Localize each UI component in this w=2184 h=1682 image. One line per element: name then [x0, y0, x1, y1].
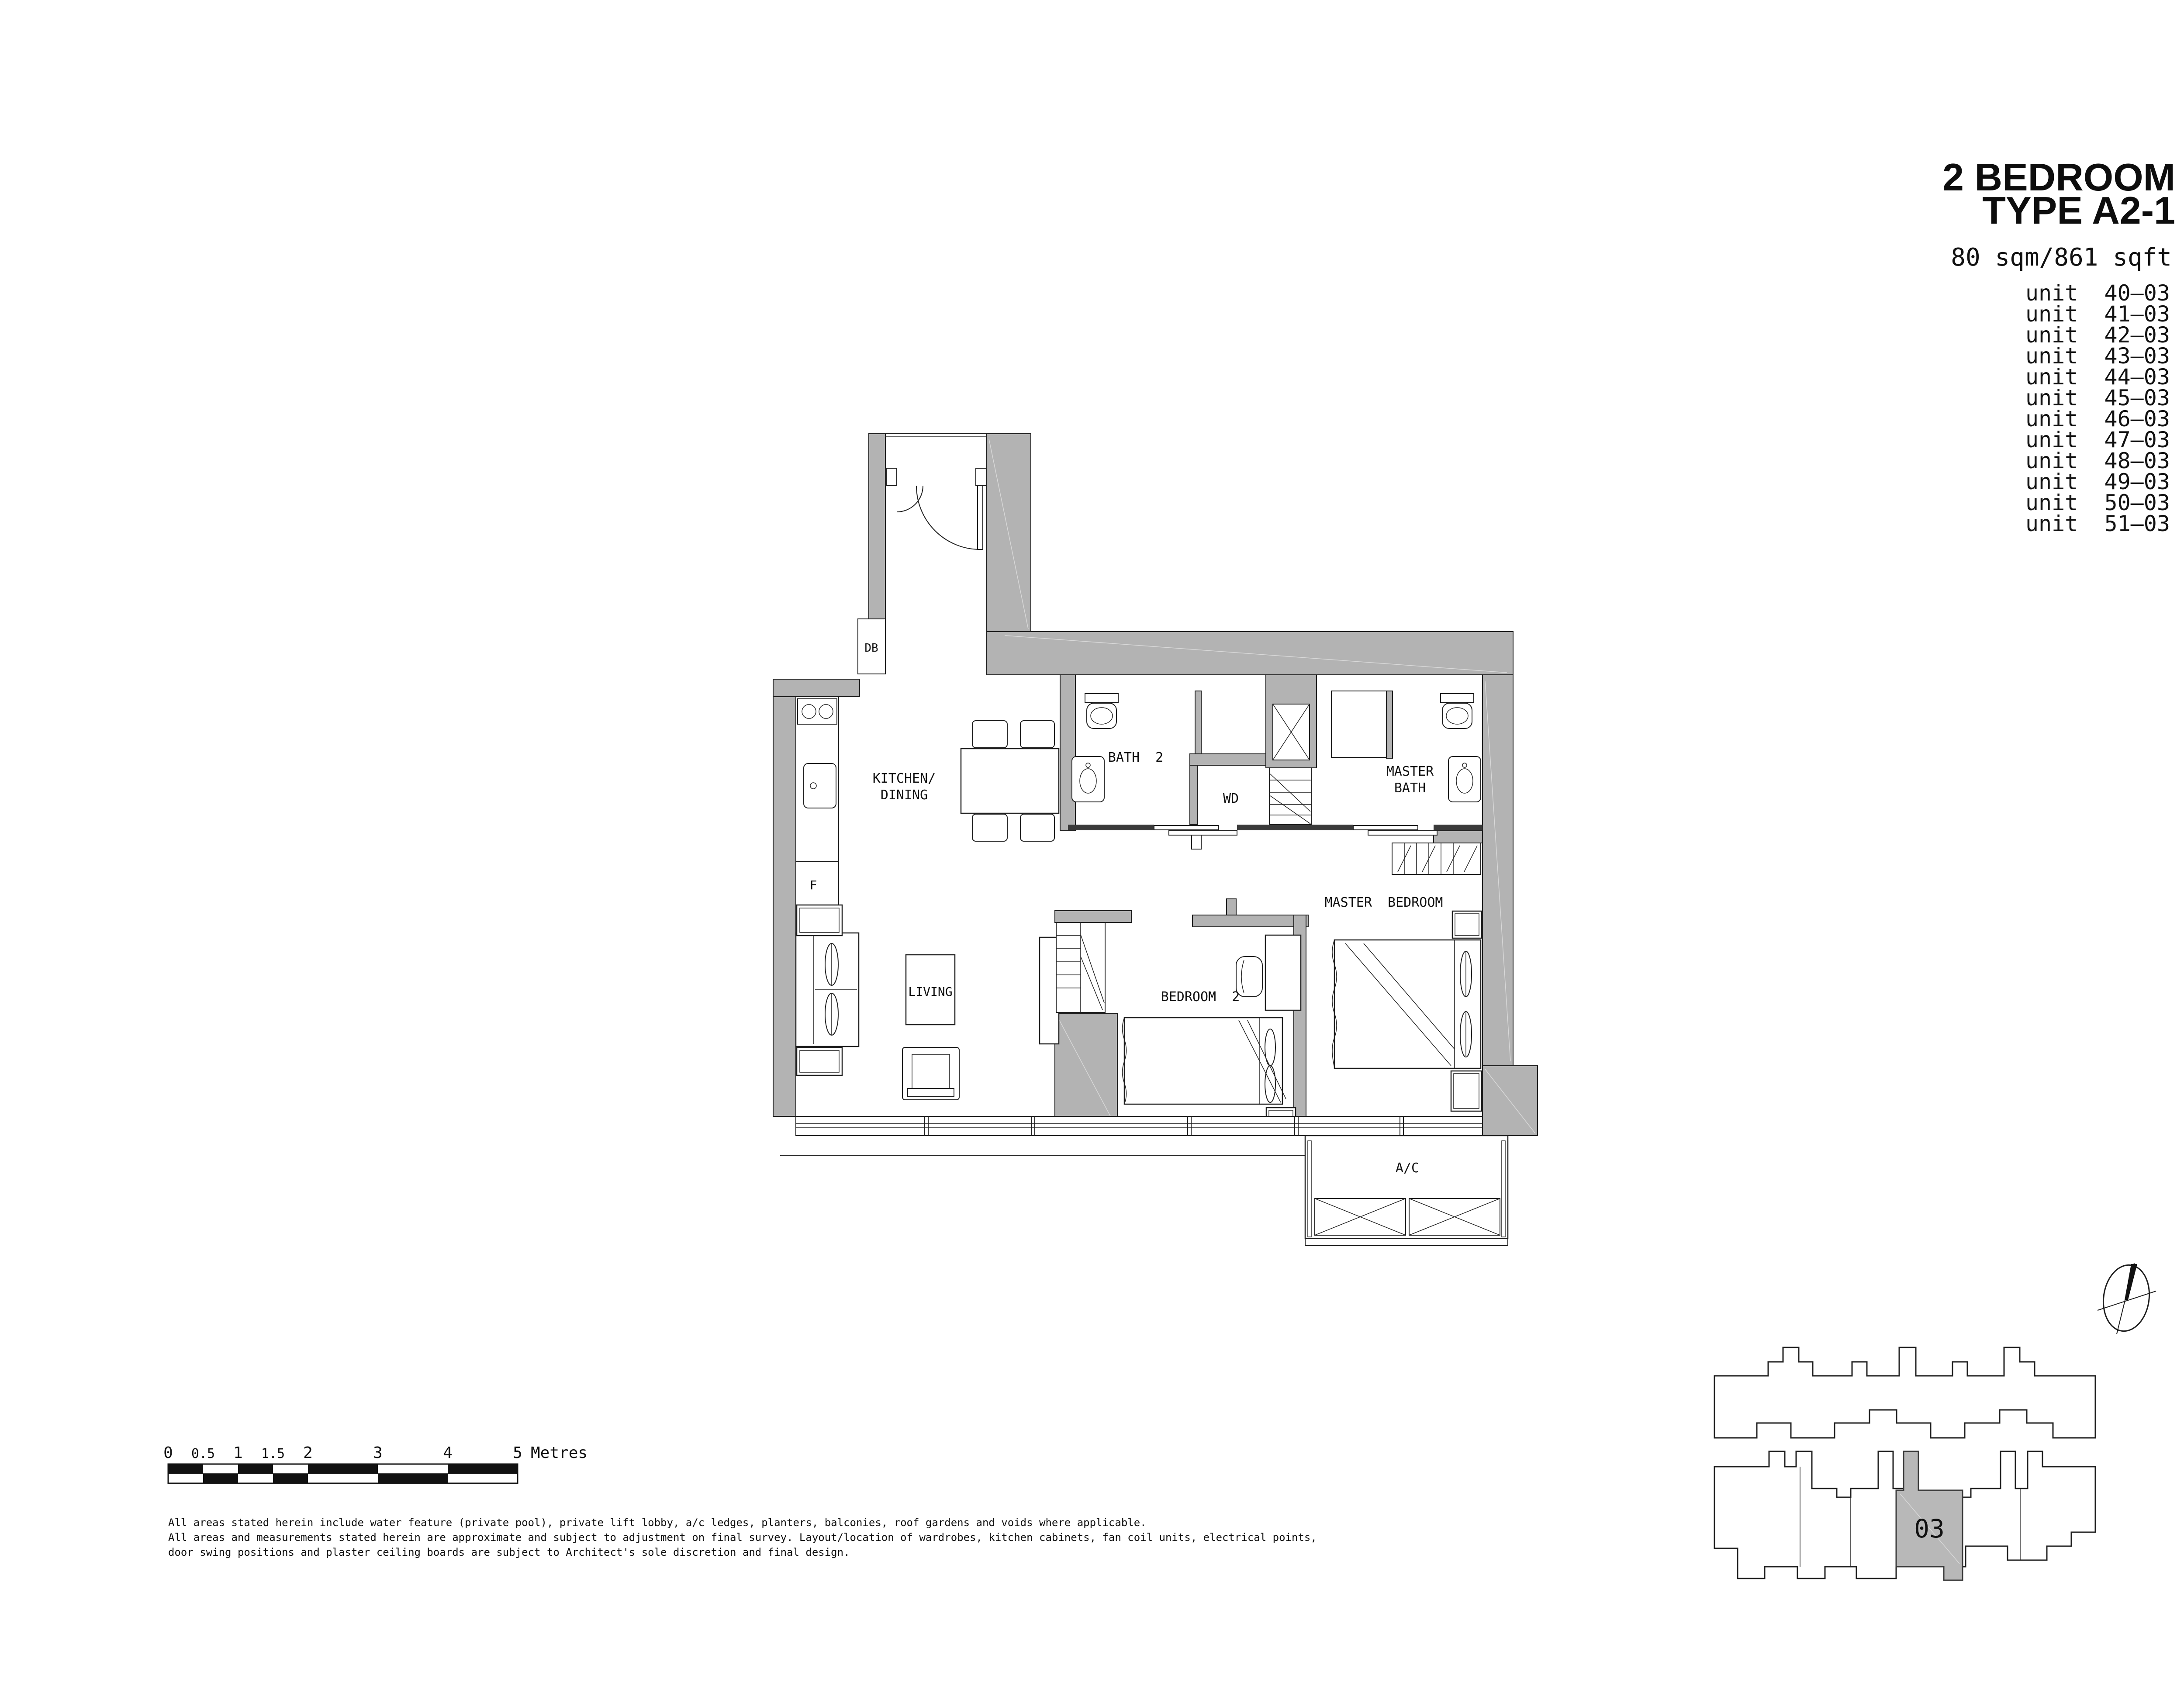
- kitchen-label-line2: DINING: [881, 787, 928, 803]
- scale-tick: 1: [233, 1444, 243, 1462]
- dining-chair: [1020, 814, 1054, 841]
- bath2-sliding-door-leaf: [1169, 831, 1237, 835]
- scale-bar-graphic: [168, 1464, 518, 1483]
- master-bath-label-line2: BATH: [1394, 781, 1426, 796]
- wall-kitchen-top: [773, 679, 860, 697]
- wall-masterbath-south: [1434, 825, 1482, 830]
- floorplan-canvas: DB F KITCHEN/ DINING: [0, 0, 2184, 1682]
- bath2-door-stop: [1192, 835, 1201, 849]
- master-sliding-door-leaf: [1368, 831, 1437, 835]
- title-block: 2 BEDROOM TYPE A2-1 80 sqm/861 sqft unit…: [1942, 155, 2175, 536]
- kitchen-sink: [804, 763, 836, 808]
- floorplan-page: DB F KITCHEN/ DINING: [0, 0, 2184, 1682]
- single-bed: [1124, 1018, 1282, 1104]
- fridge: [796, 861, 839, 905]
- ac-bottom-strip: [1305, 1239, 1508, 1246]
- scale-unit-label: Metres: [531, 1444, 587, 1462]
- disclaimer-line3: door swing positions and plaster ceiling…: [168, 1546, 850, 1558]
- area-label: 80 sqm/861 sqft: [1951, 243, 2172, 272]
- scale-bar: 0 0.5 1 1.5 2 3 4 5 Metres: [163, 1444, 587, 1483]
- disclaimer-line1: All areas stated herein include water fe…: [168, 1516, 1147, 1529]
- bath2-label: BATH 2: [1108, 750, 1163, 765]
- scale-tick: 0: [163, 1444, 173, 1462]
- scale-tick: 0.5: [191, 1446, 215, 1461]
- master-bath: MASTER BATH: [1331, 691, 1481, 802]
- db-label: DB: [864, 642, 878, 655]
- wall-bath2-south-a: [1068, 825, 1154, 830]
- side-table: [797, 1047, 842, 1075]
- north-needle: [2125, 1264, 2137, 1300]
- entry-door-swing-arc-small: [897, 486, 923, 512]
- key-plan: 03: [1714, 1262, 2156, 1580]
- disclaimer-line2: All areas and measurements stated herein…: [168, 1531, 1317, 1544]
- key-plan-upper-wing: [1714, 1347, 2095, 1438]
- master-bedroom-label: MASTER BEDROOM: [1325, 895, 1443, 910]
- toilet-bowl: [1087, 703, 1116, 729]
- desk: [1265, 935, 1301, 1010]
- master-wardrobe: [1392, 843, 1481, 874]
- hob: [798, 699, 837, 724]
- wall-masterbath-shower-partition: [1386, 691, 1393, 758]
- wall-bath-south-b: [1237, 825, 1353, 830]
- wall-left: [773, 679, 796, 1116]
- scale-tick: 3: [373, 1444, 383, 1462]
- wd-label: WD: [1223, 791, 1239, 806]
- wall-wd-top: [1190, 754, 1267, 765]
- toilet-tank: [1441, 694, 1474, 702]
- living-label: LIVING: [908, 984, 952, 999]
- pillow: [1265, 1029, 1275, 1066]
- entry-door-leaf: [978, 486, 983, 549]
- door-frame-left: [886, 468, 897, 486]
- wall-bedroom2-door-tab: [1227, 899, 1236, 915]
- north-arrow-icon: [2098, 1262, 2156, 1334]
- nightstand: [1451, 1071, 1482, 1111]
- master-shower: [1331, 691, 1386, 757]
- kitchen-label-line1: KITCHEN/: [873, 771, 936, 786]
- ac-label: A/C: [1396, 1160, 1419, 1176]
- living: LIVING: [796, 905, 1059, 1100]
- key-plan-unit-label: 03: [1914, 1514, 1945, 1544]
- plan-title-line2: TYPE A2-1: [1982, 189, 2175, 232]
- dining-chair: [1020, 721, 1054, 748]
- bath2-sliding-door-track: [1154, 825, 1219, 830]
- window-band: [796, 1116, 1482, 1136]
- toilet-bowl: [1442, 703, 1472, 729]
- master-bedroom: MASTER BEDROOM: [1325, 843, 1482, 1111]
- wall-dining-bath-divider: [1060, 675, 1075, 831]
- linen-closet: [1269, 768, 1311, 825]
- wall-bath2-shower-partition: [1195, 691, 1201, 757]
- bath2: BATH 2: [1072, 694, 1163, 802]
- wall-corridor-left: [869, 434, 885, 619]
- fridge-label: F: [810, 878, 817, 892]
- toilet-tank: [1085, 694, 1118, 702]
- bedroom2-label: BEDROOM 2: [1161, 989, 1240, 1005]
- wall-bedroom2-north: [1192, 915, 1308, 927]
- wall-wd-left: [1190, 765, 1198, 825]
- armchair-front: [908, 1088, 954, 1096]
- scale-tick: 4: [443, 1444, 453, 1462]
- scale-tick: 2: [303, 1444, 313, 1462]
- master-bath-label-line1: MASTER: [1386, 764, 1434, 779]
- entry-door-swing-arc: [916, 486, 980, 549]
- pillow: [1265, 1066, 1275, 1102]
- dining-table: [961, 749, 1059, 813]
- wall-bedroom2-north-west: [1055, 911, 1131, 922]
- scale-tick: 5: [513, 1444, 522, 1462]
- door-frame-right: [976, 468, 986, 486]
- master-sliding-door-track: [1353, 825, 1418, 830]
- disclaimer: All areas stated herein include water fe…: [168, 1516, 1317, 1558]
- unit-list: unit 40–03 unit 41–03 unit 42–03 unit 43…: [2025, 280, 2170, 536]
- ac-ledge: A/C: [1305, 1136, 1508, 1246]
- kitchen-dining: F KITCHEN/ DINING: [796, 697, 1059, 905]
- wall-master-north: [1434, 831, 1482, 843]
- scale-tick: 1.5: [261, 1446, 285, 1461]
- nightstand: [1452, 911, 1482, 938]
- dining-chair: [972, 721, 1007, 748]
- dining-chair: [972, 814, 1007, 841]
- desk-chair: [1236, 957, 1262, 997]
- unit-list-item: unit 51–03: [2025, 511, 2170, 536]
- wall-top-band: [986, 632, 1513, 675]
- floor-plan: DB F KITCHEN/ DINING: [773, 434, 1538, 1246]
- double-bed: [1334, 940, 1481, 1068]
- side-table: [797, 905, 842, 936]
